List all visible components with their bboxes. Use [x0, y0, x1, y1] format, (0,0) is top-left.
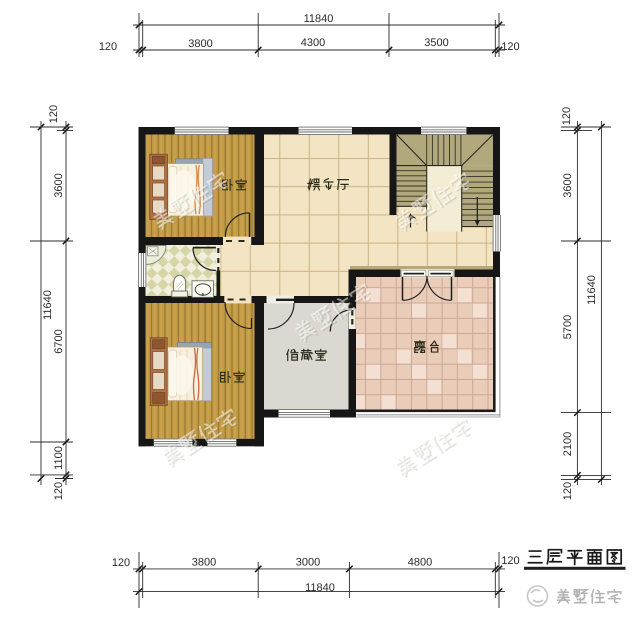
svg-text:11840: 11840 [305, 582, 335, 594]
svg-text:1100: 1100 [53, 446, 65, 470]
svg-text:3600: 3600 [53, 173, 65, 197]
svg-text:5700: 5700 [562, 315, 574, 339]
svg-text:3000: 3000 [296, 557, 320, 569]
svg-text:120: 120 [501, 41, 519, 53]
svg-text:120: 120 [48, 105, 60, 123]
svg-text:6700: 6700 [53, 329, 65, 353]
svg-text:4300: 4300 [301, 37, 325, 49]
svg-text:120: 120 [561, 107, 573, 125]
svg-text:11640: 11640 [42, 290, 54, 320]
svg-text:120: 120 [562, 482, 574, 500]
svg-text:120: 120 [53, 482, 65, 500]
svg-text:11640: 11640 [586, 275, 598, 305]
svg-text:2100: 2100 [562, 432, 574, 456]
svg-text:4800: 4800 [408, 557, 432, 569]
svg-text:120: 120 [501, 555, 519, 567]
svg-text:120: 120 [112, 557, 130, 569]
svg-text:3800: 3800 [188, 38, 212, 50]
svg-text:11840: 11840 [304, 13, 334, 25]
svg-text:3800: 3800 [192, 557, 216, 569]
svg-text:120: 120 [99, 41, 117, 53]
svg-text:3500: 3500 [424, 37, 448, 49]
svg-text:3600: 3600 [562, 173, 574, 197]
